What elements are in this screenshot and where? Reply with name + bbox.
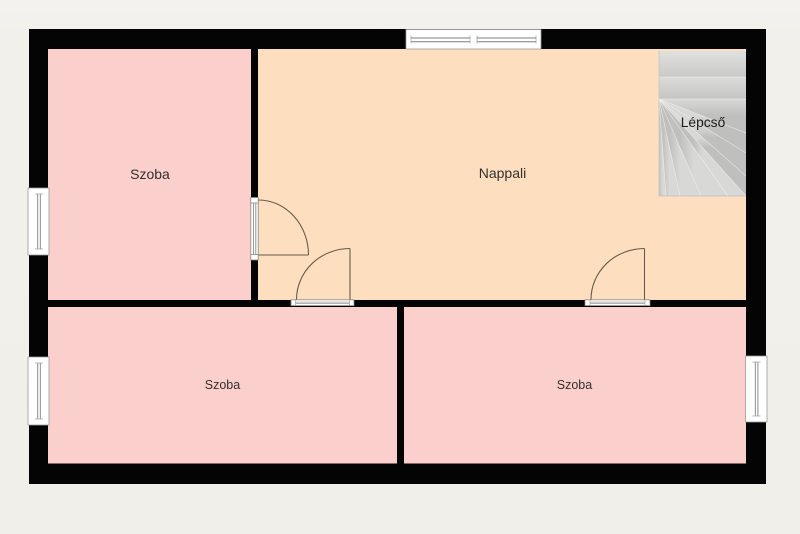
svg-text:Nappali: Nappali xyxy=(479,165,526,181)
svg-text:Szoba: Szoba xyxy=(557,378,592,392)
svg-text:Szoba: Szoba xyxy=(205,378,240,392)
svg-text:Lépcső: Lépcső xyxy=(681,115,726,130)
svg-text:Szoba: Szoba xyxy=(130,166,170,182)
